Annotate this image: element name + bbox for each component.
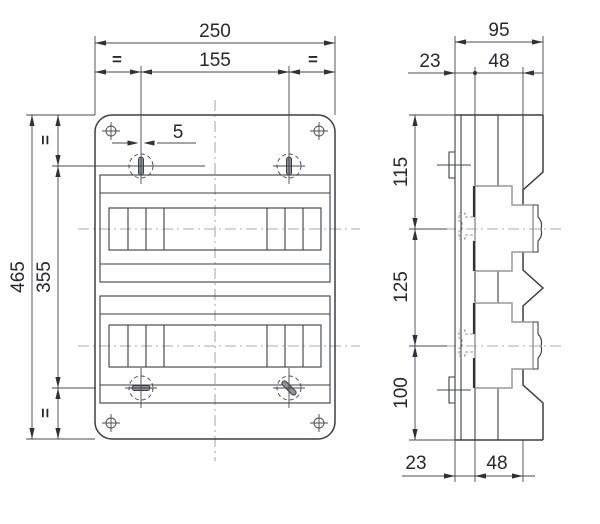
side-centerlines — [409, 229, 563, 346]
dim-label-width-total: 250 — [199, 21, 231, 42]
dim-label-bottom-offset: 23 — [405, 453, 426, 474]
dim-label-bottom-rail: 48 — [486, 453, 507, 474]
enclosure-side-view: 95 23 48 115 125 100 23 48 — [391, 20, 563, 482]
dim-label-depth-total: 95 — [488, 20, 509, 41]
dim-slot-width: 5 — [112, 122, 196, 146]
dim-label-slot-width: 5 — [173, 122, 184, 143]
screw-hole-icon — [310, 122, 328, 140]
technical-drawing-page: 250 155 = = 5 465 355 = = — [0, 0, 600, 524]
enclosure-front-view: 250 155 = = 5 465 355 = = — [8, 21, 360, 461]
side-profile — [437, 115, 543, 440]
dim-label-spacing-middle: 125 — [391, 271, 412, 303]
front-face-profile — [523, 115, 543, 440]
screw-hole-icon — [102, 122, 120, 140]
back-wall — [455, 115, 461, 440]
equal-spacing-mark-top: = — [36, 135, 55, 145]
mounting-tabs — [449, 152, 455, 403]
dim-label-spacing-bottom: 100 — [391, 377, 412, 409]
mounting-slot-bottom-left — [125, 368, 157, 408]
dim-label-height-between-slots: 355 — [34, 261, 55, 293]
slot-tick — [273, 368, 305, 408]
front-centerlines — [78, 100, 360, 461]
screw-hole-icon — [102, 414, 120, 432]
slot-tick — [125, 368, 157, 408]
equal-spacing-mark-left: = — [112, 50, 122, 69]
dim-top-offset-rail: 23 48 — [408, 51, 543, 115]
equal-spacing-mark-right: = — [308, 50, 318, 69]
dim-label-width-between-slots: 155 — [199, 50, 231, 71]
screw-hole-icon — [310, 414, 328, 432]
dim-height-between-slots: 355 = = — [34, 115, 205, 439]
dim-row-spacing-chain: 115 125 100 — [391, 115, 456, 440]
extension-lines — [475, 67, 523, 115]
dim-bottom-offset-rail: 23 48 — [402, 440, 535, 482]
dimension-dot — [473, 71, 477, 75]
dim-label-top-rail: 48 — [488, 51, 509, 72]
dim-label-height-total: 465 — [8, 261, 29, 293]
enclosure-dimension-drawing: 250 155 = = 5 465 355 = = — [0, 0, 600, 524]
extension-lines — [455, 36, 543, 115]
mounting-tab-ticks — [437, 165, 471, 390]
equal-spacing-mark-bottom: = — [36, 408, 55, 418]
dim-label-top-offset: 23 — [419, 51, 440, 72]
dim-label-spacing-top: 115 — [391, 157, 412, 187]
mounting-slot-bottom-right — [273, 368, 305, 408]
inner-lines — [475, 115, 523, 440]
